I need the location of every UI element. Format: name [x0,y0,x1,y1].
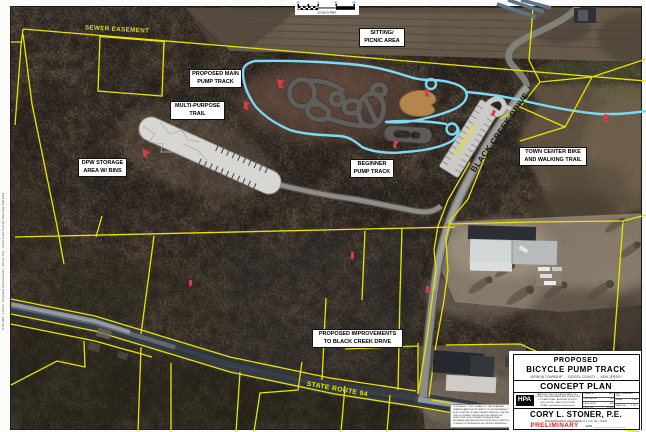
svg-text:0: 0 [317,2,319,5]
svg-text:80: 80 [353,2,356,5]
svg-text:K:\21-086 - 1.02 mi - Proposed: K:\21-086 - 1.02 mi - Proposed Improveme… [1,192,5,330]
svg-text:40: 40 [335,2,338,5]
svg-text:40: 40 [297,2,300,5]
svg-text:SCALE IN FEET: SCALE IN FEET [317,11,337,15]
